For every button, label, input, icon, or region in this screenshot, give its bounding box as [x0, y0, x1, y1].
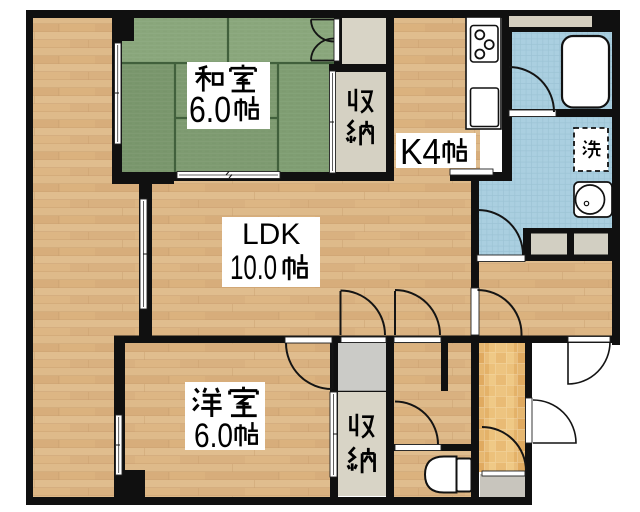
svg-text:6.0: 6.0	[194, 417, 233, 455]
svg-text:10.0: 10.0	[230, 249, 277, 287]
svg-text:LDK: LDK	[242, 218, 300, 251]
svg-text:K4: K4	[400, 131, 441, 172]
svg-text:6.0: 6.0	[189, 89, 231, 130]
